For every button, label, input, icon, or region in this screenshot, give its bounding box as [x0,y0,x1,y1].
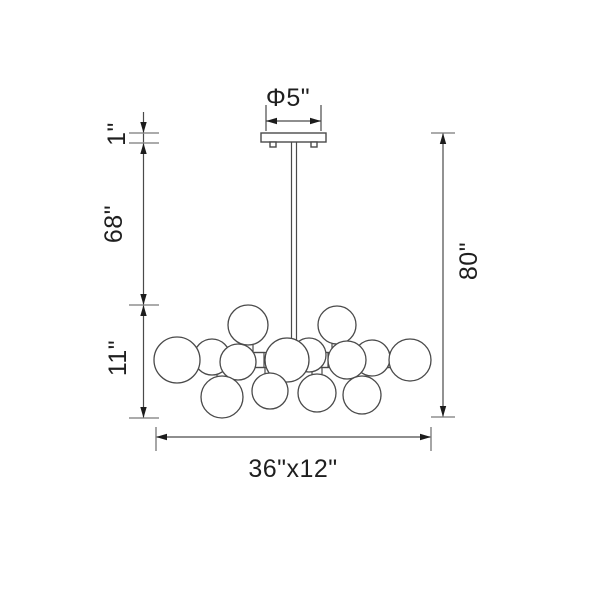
globe [228,305,268,345]
globes-group [154,305,431,418]
globe [154,337,200,383]
arrow-left-icon [156,434,167,440]
dimension-left-stack: 1" 68" 11" [100,112,159,418]
canopy-diameter-label: Φ5" [266,84,310,112]
canopy-screw-right [311,142,317,147]
arrow-down-icon [140,407,146,418]
arrow-left-icon [266,118,277,124]
canopy-height-label: 1" [103,122,131,146]
globe [298,374,336,412]
globe [201,376,243,418]
canopy [261,133,326,147]
arrow-down-icon [140,122,146,133]
dimension-overall-height: 80" [431,133,483,417]
fixture-height-label: 11" [104,340,132,376]
dimension-diagram: Φ5" 1" 68" 11" 80" 36"x12" [0,0,600,600]
globe [252,373,288,409]
canopy-plate [261,133,326,142]
globe [343,376,381,414]
arrow-down-icon [140,294,146,305]
arrow-up-icon [440,133,446,144]
dimension-canopy-diameter: Φ5" [266,84,321,131]
globe [389,339,431,381]
globe [328,341,366,379]
fixture-width-depth-label: 36"x12" [248,455,337,483]
arrow-up-icon [140,305,146,316]
arrow-right-icon [310,118,321,124]
arrow-up-icon [140,143,146,154]
globe [318,306,356,344]
canopy-screw-left [270,142,276,147]
dimension-fixture-width: 36"x12" [156,427,431,483]
overall-height-label: 80" [455,242,483,280]
globe [220,344,256,380]
arrow-down-icon [440,406,446,417]
rod-length-label: 68" [100,205,128,243]
arrow-right-icon [420,434,431,440]
chandelier-drawing-svg: Φ5" 1" 68" 11" 80" 36"x12" [0,0,600,600]
